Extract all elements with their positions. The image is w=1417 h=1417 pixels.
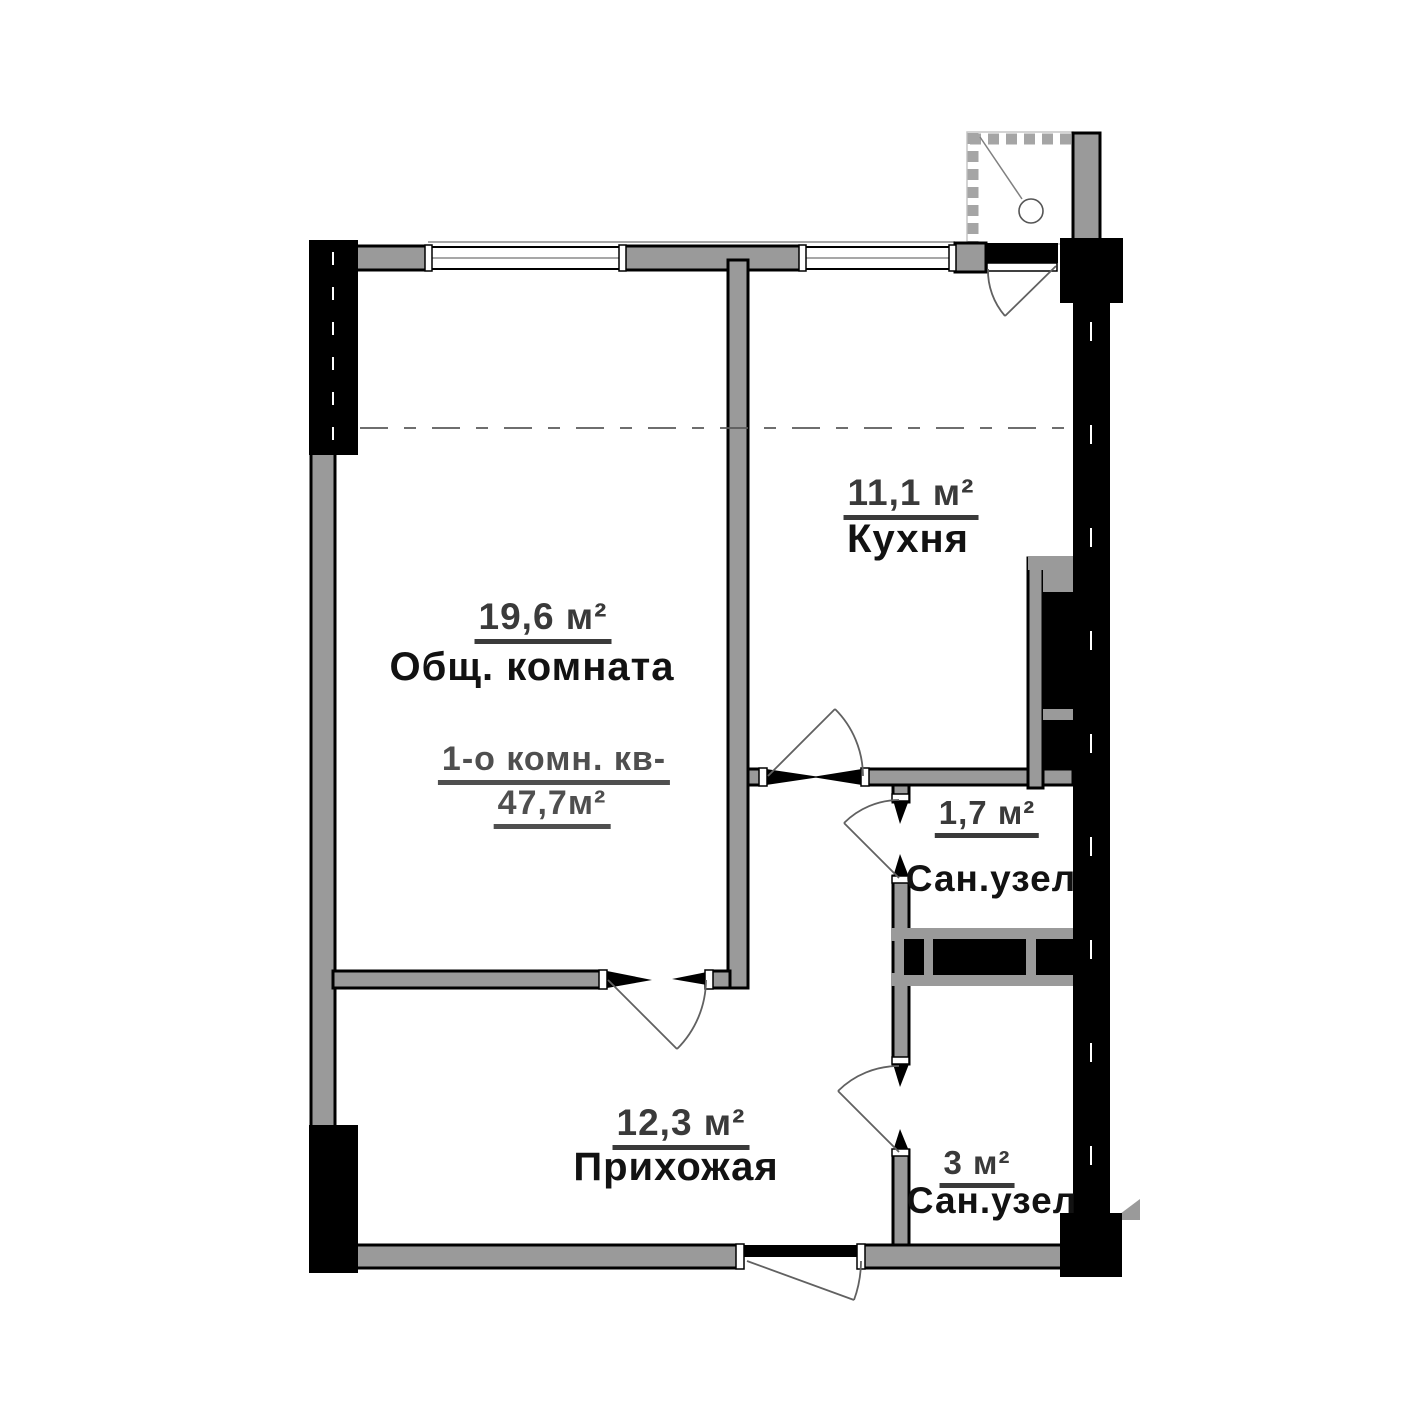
- kitchen-door-leaf: [768, 709, 835, 776]
- balcony-door-leaf: [1005, 266, 1056, 316]
- hall-door-stop-right: [672, 972, 707, 985]
- bath1-door-leaf: [844, 823, 899, 878]
- top-wall-segment-middle: [625, 246, 802, 270]
- duct-cell-c: [1036, 939, 1073, 975]
- apartment-title-line1: 1-о комн. кв-: [438, 742, 670, 785]
- kitchen-area-label: 11,1 м²: [844, 474, 979, 520]
- hall-door-arc: [677, 980, 706, 1049]
- kitchen-name-label: Кухня: [847, 518, 969, 560]
- bath2-door-stop-top: [893, 1064, 909, 1087]
- top-right-corner-pier: [1060, 238, 1123, 303]
- entrance-door-lintel: [743, 1245, 861, 1257]
- living-room-name-label: Общ. комната: [389, 646, 674, 688]
- bathroom-small-area-label: 1,7 м²: [935, 796, 1039, 838]
- balcony-door-lintel: [985, 243, 1058, 263]
- vent-duct-cell-1: [1043, 592, 1074, 709]
- bath2-door-leaf: [838, 1091, 899, 1152]
- hallway-area-label: 12,3 м²: [613, 1104, 750, 1150]
- hallway-name-label: Прихожая: [573, 1146, 778, 1188]
- living-room-area-label: 19,6 м²: [475, 598, 612, 644]
- shower-head-circle: [1019, 199, 1043, 223]
- bath1-door-stop-top: [893, 800, 909, 824]
- axis-lines: [333, 252, 1091, 1205]
- bottom-wall-left: [333, 1245, 743, 1268]
- floor-plan-canvas: 19,6 м² Общ. комната 1-о комн. кв- 47,7м…: [0, 0, 1417, 1417]
- hall-door-leaf: [608, 980, 677, 1049]
- floor-plan-drawing: [0, 0, 1417, 1417]
- duct-cell-a: [904, 939, 924, 975]
- bottom-right-pier: [1060, 1213, 1122, 1277]
- living-kitchen-partition-wall: [728, 260, 748, 988]
- bottom-left-pier: [309, 1125, 358, 1273]
- balcony-door-block: [955, 243, 986, 272]
- top-right-gray-wall: [1073, 133, 1100, 241]
- kitchen-door-stop-right: [812, 769, 862, 785]
- entrance-door-leaf: [747, 1261, 854, 1300]
- hallway-divider-wall: [333, 971, 605, 988]
- walls-gray-layer: [311, 133, 1100, 1269]
- bottom-wall-right: [860, 1245, 1062, 1268]
- shower-arm-line: [980, 137, 1022, 199]
- kitchen-door-arc: [835, 709, 863, 776]
- kitchen-door-stop-left: [766, 769, 820, 785]
- duct-cell-b: [933, 939, 1026, 975]
- balcony-door-arc: [988, 269, 1005, 316]
- bathroom-small-name-label: Сан.узел: [906, 860, 1076, 899]
- top-left-pier: [309, 240, 358, 455]
- bath1-door-arc: [844, 800, 899, 823]
- balcony-shower-box: [967, 132, 1073, 244]
- vent-duct-cell-2: [1043, 720, 1074, 768]
- bathroom-big-name-label: Сан.узел: [907, 1182, 1077, 1221]
- vent-shaft-wall: [1028, 558, 1043, 788]
- bath2-door-arc: [838, 1066, 899, 1091]
- apartment-title-line2: 47,7м²: [494, 786, 611, 829]
